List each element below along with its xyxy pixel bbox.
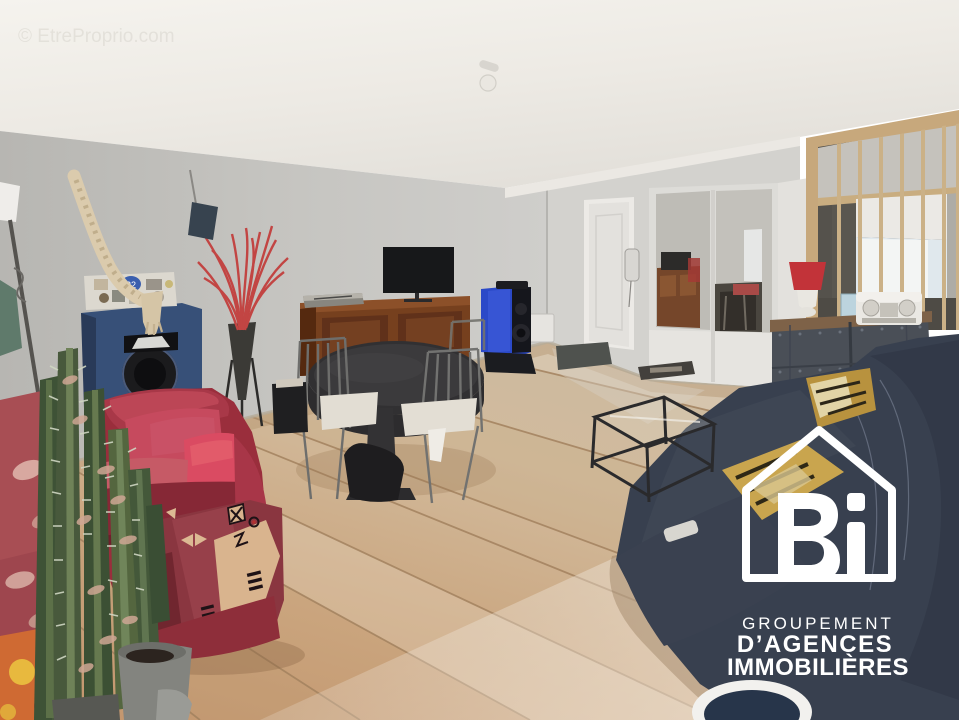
svg-text:© EtreProprio.com: © EtreProprio.com (18, 26, 175, 47)
svg-text:IMMOBILIÈRES: IMMOBILIÈRES (727, 653, 909, 681)
